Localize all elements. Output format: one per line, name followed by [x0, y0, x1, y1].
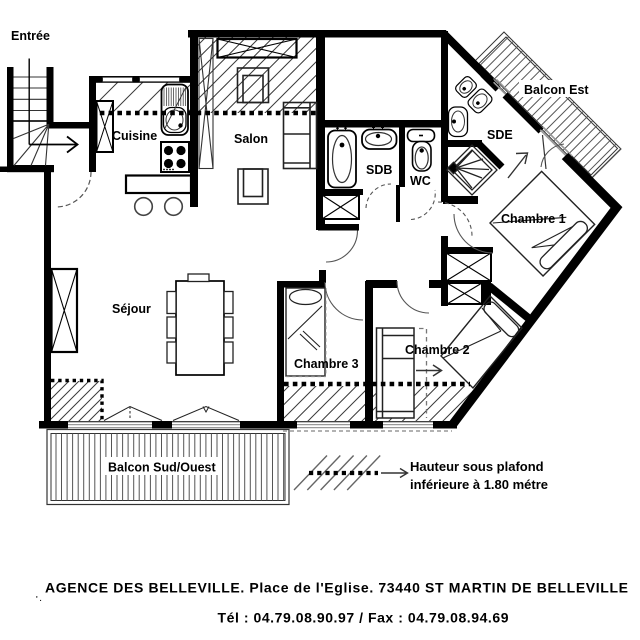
svg-text:SDB: SDB [366, 163, 392, 177]
svg-text:Balcon Sud/Ouest: Balcon Sud/Ouest [108, 461, 216, 475]
svg-text:Séjour: Séjour [112, 302, 151, 316]
svg-text:Chambre 2: Chambre 2 [405, 343, 470, 357]
svg-text:inférieure à 1.80 métre: inférieure à 1.80 métre [410, 477, 548, 492]
svg-text:Tél : 04.79.08.90.97 / Fax : 0: Tél : 04.79.08.90.97 / Fax : 04.79.08.94… [218, 610, 509, 626]
svg-text:Chambre 3: Chambre 3 [294, 357, 359, 371]
svg-text:WC: WC [410, 174, 431, 188]
svg-text:Cuisine: Cuisine [112, 129, 157, 143]
svg-text:SDE: SDE [487, 128, 513, 142]
svg-text:' .: ' . [36, 596, 42, 603]
svg-text:Hauteur sous plafond: Hauteur sous plafond [410, 459, 544, 474]
svg-text:AGENCE DES BELLEVILLE. Place d: AGENCE DES BELLEVILLE. Place de l'Eglise… [45, 580, 628, 596]
svg-text:Chambre 1: Chambre 1 [501, 212, 566, 226]
svg-text:Balcon Est: Balcon Est [524, 83, 589, 97]
svg-text:Salon: Salon [234, 132, 268, 146]
svg-text:Entrée: Entrée [11, 29, 50, 43]
